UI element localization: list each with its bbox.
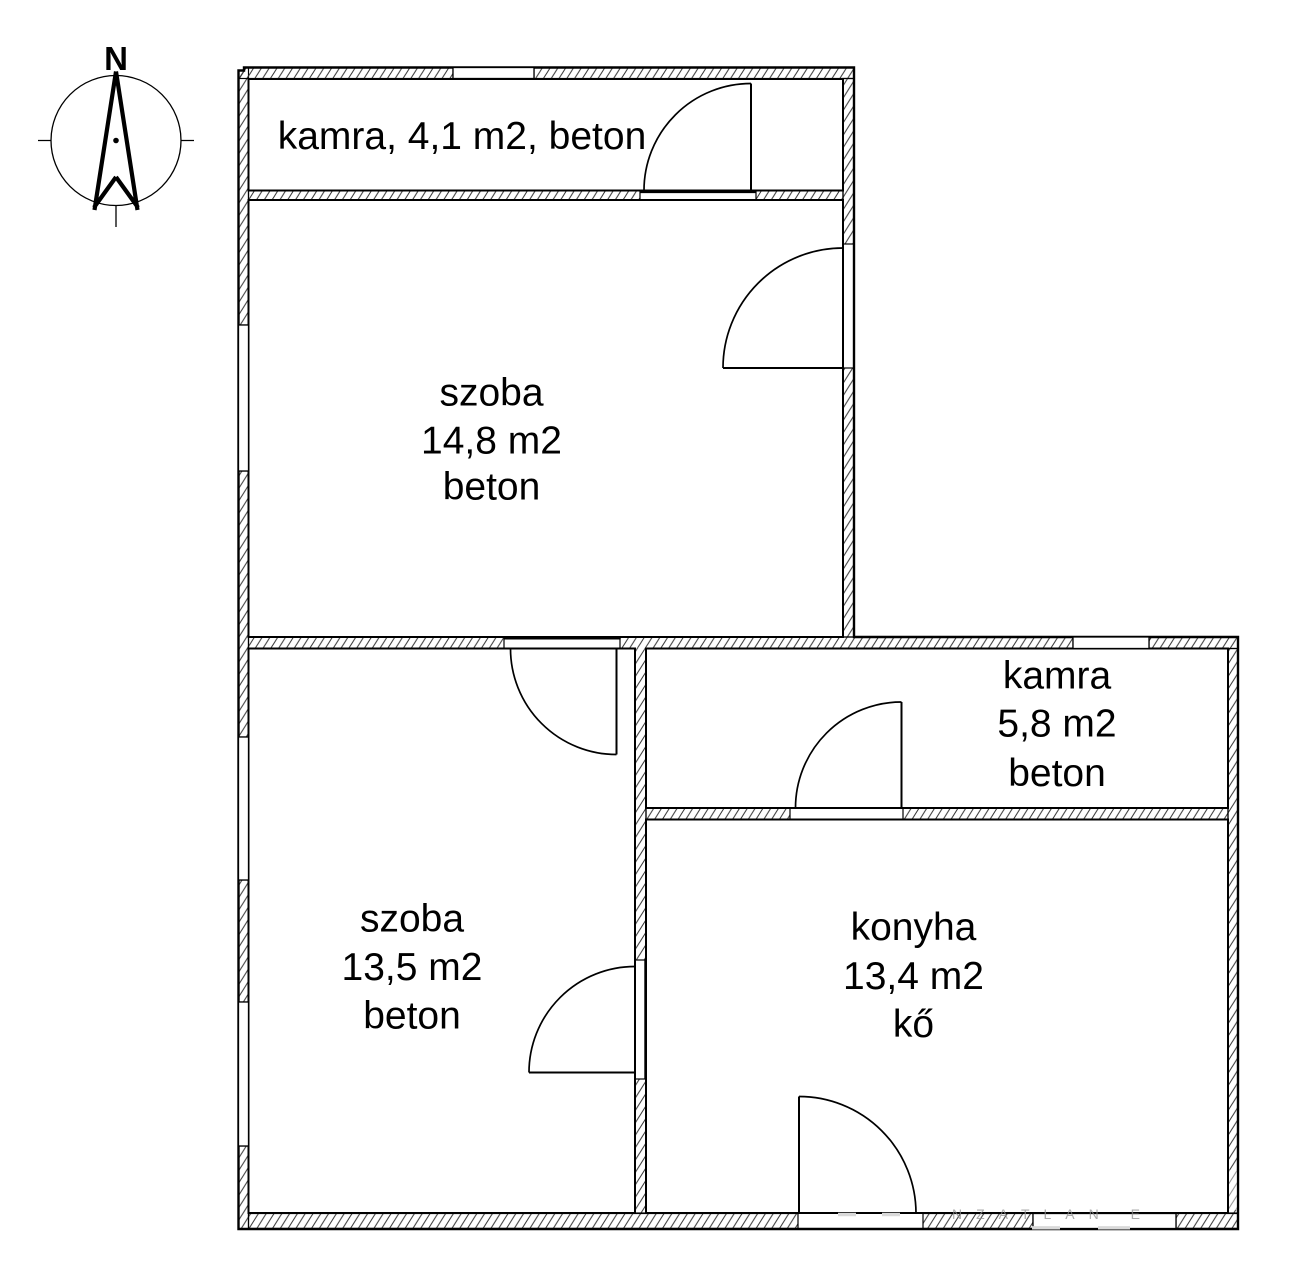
svg-text:N: N bbox=[104, 40, 128, 77]
svg-text:kamra, 4,1 m2, beton: kamra, 4,1 m2, beton bbox=[278, 115, 647, 158]
svg-text:14,8 m2: 14,8 m2 bbox=[421, 420, 562, 463]
svg-text:beton: beton bbox=[363, 995, 461, 1038]
svg-text:5,8 m2: 5,8 m2 bbox=[997, 703, 1116, 746]
svg-text:13,5 m2: 13,5 m2 bbox=[342, 946, 483, 989]
svg-text:NZATLAN E: NZATLAN E bbox=[952, 1206, 1154, 1222]
svg-text:beton: beton bbox=[1008, 752, 1106, 795]
svg-text:szoba: szoba bbox=[360, 898, 464, 941]
svg-text:kő: kő bbox=[893, 1003, 934, 1046]
svg-text:13,4 m2: 13,4 m2 bbox=[843, 955, 984, 998]
svg-text:szoba: szoba bbox=[439, 372, 543, 415]
svg-text:beton: beton bbox=[443, 466, 541, 509]
svg-text:konyha: konyha bbox=[851, 906, 977, 949]
svg-text:kamra: kamra bbox=[1003, 655, 1112, 698]
